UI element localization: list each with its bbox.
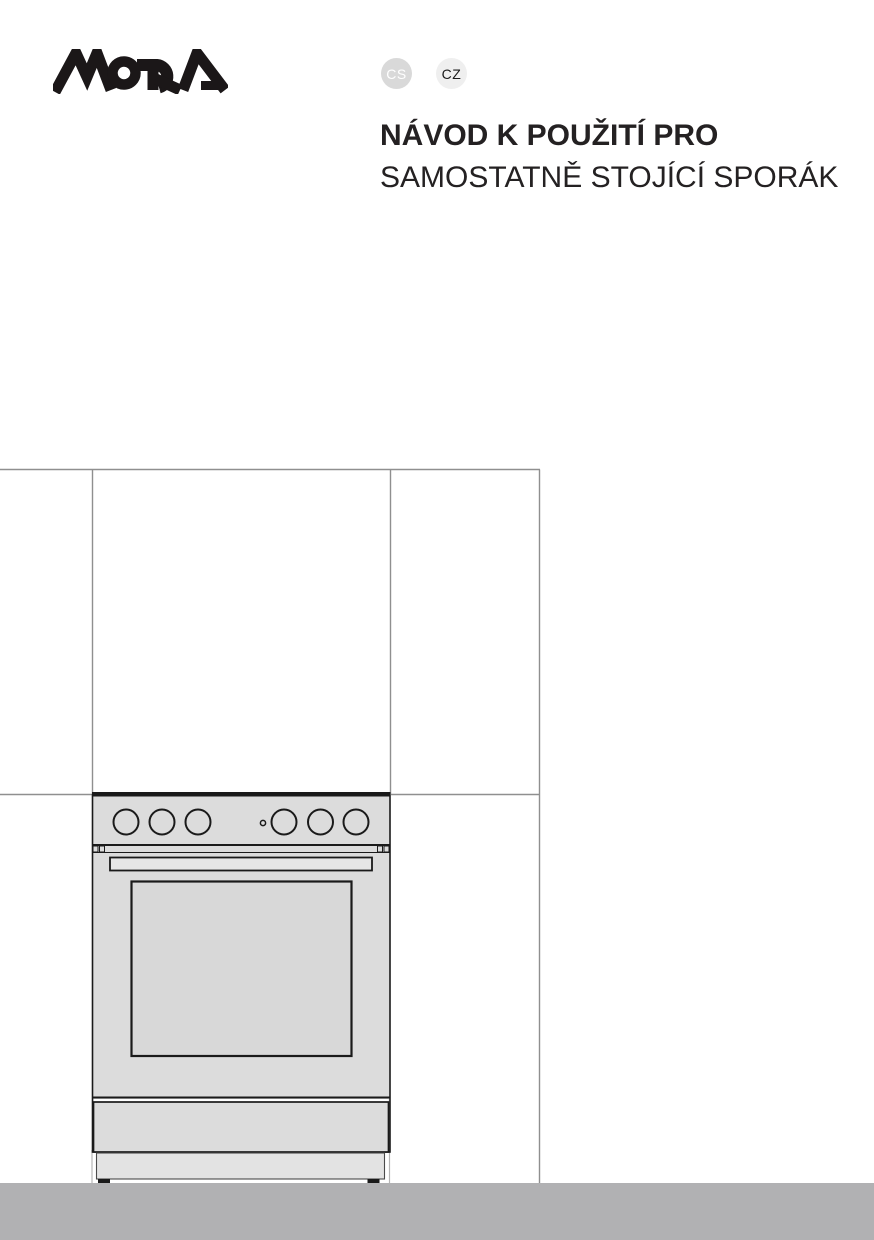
manual-cover-page: CS CZ NÁVOD K POUŽITÍ PRO SAMOSTATNĚ STO… <box>0 0 874 1240</box>
storage-drawer <box>94 1102 389 1152</box>
cooker-illustration <box>0 0 874 1240</box>
cooker <box>92 792 391 1185</box>
hinge-tick <box>384 846 389 852</box>
hinge-tick <box>100 846 105 852</box>
control-knob-1 <box>114 810 139 835</box>
hinge-tick <box>378 846 383 852</box>
oven-window <box>132 882 352 1057</box>
plinth <box>97 1153 385 1179</box>
cooktop-edge <box>92 792 391 797</box>
control-knob-3 <box>186 810 211 835</box>
door-drawer-gap <box>94 1099 389 1102</box>
hinge-tick <box>93 846 98 852</box>
control-knob-4 <box>272 810 297 835</box>
floor-strip <box>0 1183 874 1240</box>
control-knob-6 <box>344 810 369 835</box>
door-handle <box>110 858 372 871</box>
control-knob-2 <box>150 810 175 835</box>
control-knob-5 <box>308 810 333 835</box>
